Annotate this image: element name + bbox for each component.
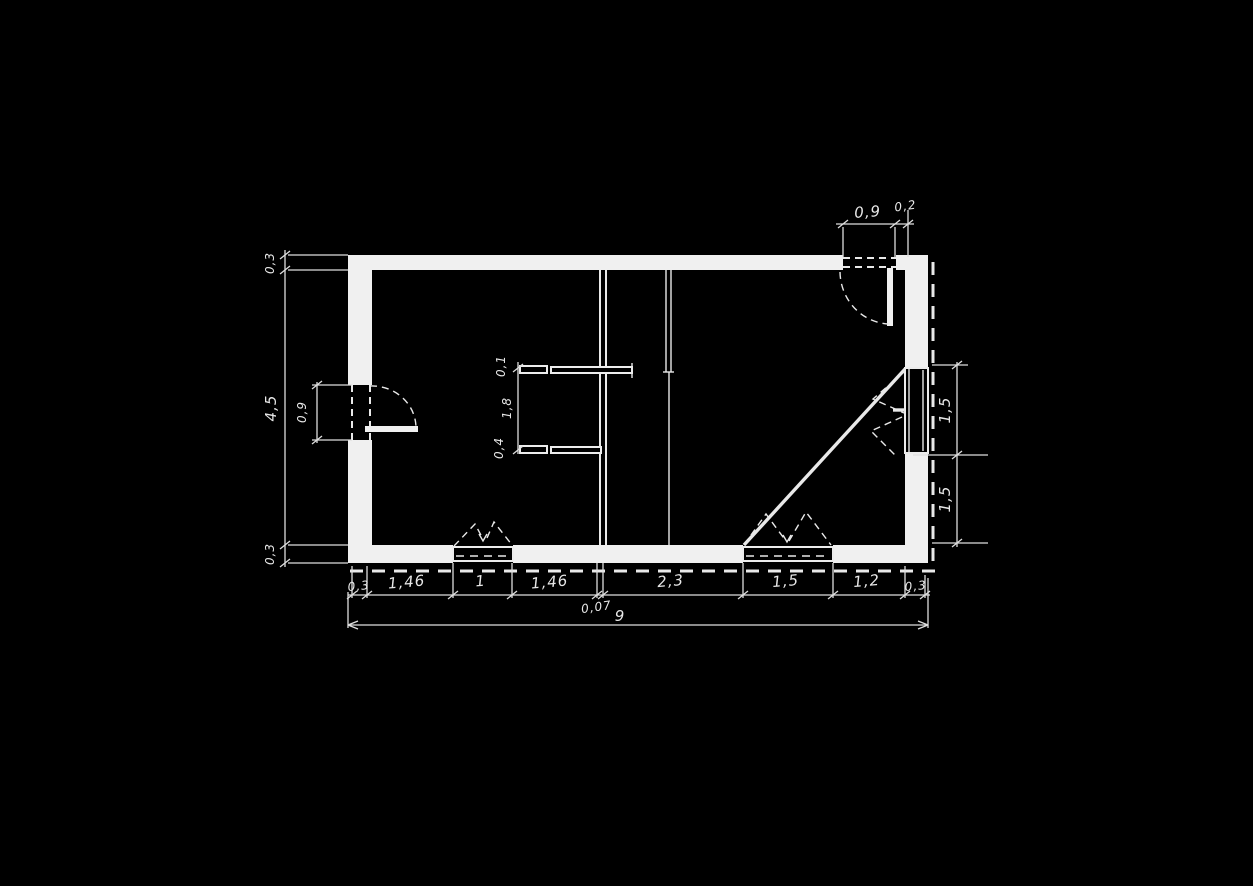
top-door	[840, 258, 896, 326]
dim-label-right-lower: 1,5	[936, 486, 954, 513]
dim-label-b4: 0,07	[580, 598, 612, 616]
dim-label-b6: 1,5	[771, 571, 799, 591]
casement-symbol-w1-right	[487, 522, 512, 545]
insulation-dashes	[350, 262, 938, 571]
left-door-dimension: 0,9	[295, 381, 352, 444]
left-wall-upper	[348, 255, 372, 385]
right-window	[871, 368, 928, 456]
left-door	[352, 385, 418, 440]
casement-symbol-w2-right	[789, 512, 831, 545]
casement-symbol-lower	[871, 417, 902, 456]
diagonal-wall	[744, 368, 906, 545]
dim-label-right-upper: 1,5	[936, 397, 954, 424]
dim-label-b1: 1,46	[387, 571, 426, 592]
casement-symbol-w1-left	[454, 524, 483, 546]
shelf-top-bar	[551, 367, 632, 373]
bottom-window-2	[743, 512, 833, 561]
scanned-floor-plan: 0,3 4,5 0,3 0,9 0,9 0,2 0,1 1,8 0,4	[0, 0, 1253, 886]
left-door-swing-arc	[370, 386, 416, 428]
dim-label-b0: 0,3	[347, 578, 370, 594]
interior-dimension-chain: 0,1 1,8 0,4	[492, 355, 523, 459]
left-wall-lower	[348, 440, 372, 563]
dim-label-b2: 1	[475, 572, 487, 591]
shelf-bottom-cap	[520, 446, 547, 453]
dim-label-left-door: 0,9	[295, 401, 309, 423]
dim-label-left-top: 0,3	[263, 252, 277, 274]
floor-plan-canvas: 0,3 4,5 0,3 0,9 0,9 0,2 0,1 1,8 0,4	[0, 0, 1253, 886]
right-wall-upper	[905, 255, 928, 368]
bottom-wall-middle	[513, 545, 743, 563]
dim-label-total-width: 9	[615, 607, 626, 625]
dim-label-interior-top: 0,1	[494, 355, 508, 377]
left-door-leaf	[365, 426, 418, 432]
top-door-dimension: 0,9 0,2	[836, 198, 917, 257]
dim-label-b7: 1,2	[852, 571, 880, 591]
overall-width-dimension: 9	[348, 578, 928, 629]
right-wall-lower	[905, 453, 928, 563]
top-wall-left	[348, 255, 843, 270]
dim-label-top-door-offset: 0,2	[894, 198, 918, 215]
dim-label-left-height: 4,5	[262, 395, 280, 422]
dim-label-left-bottom: 0,3	[263, 543, 277, 565]
dim-label-b8: 0,3	[904, 578, 927, 594]
dim-label-b3: 1,46	[530, 571, 569, 592]
dim-label-top-door: 0,9	[854, 202, 882, 222]
shelf-bottom-bar	[551, 447, 601, 453]
dim-label-interior-bottom: 0,4	[492, 437, 506, 459]
outer-walls	[348, 255, 928, 563]
dim-label-interior-middle: 1,8	[500, 397, 514, 419]
dim-label-b5: 2,3	[656, 571, 684, 591]
shelf-top-cap	[520, 366, 547, 373]
interior-partitions	[520, 270, 674, 545]
bottom-window-2-frame	[743, 547, 833, 561]
casement-symbol-w1-mid	[479, 534, 487, 541]
bottom-window-1	[453, 522, 513, 561]
casement-symbol-upper	[873, 372, 904, 413]
top-door-leaf	[887, 268, 893, 326]
top-door-swing-arc	[840, 272, 889, 324]
bottom-window-1-frame	[453, 547, 513, 561]
